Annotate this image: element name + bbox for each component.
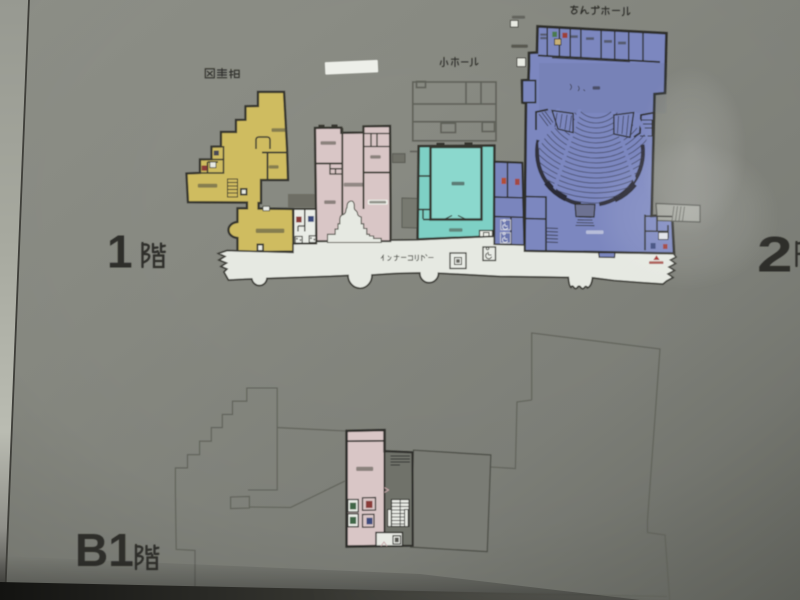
svg-text:1: 1 <box>107 226 133 278</box>
